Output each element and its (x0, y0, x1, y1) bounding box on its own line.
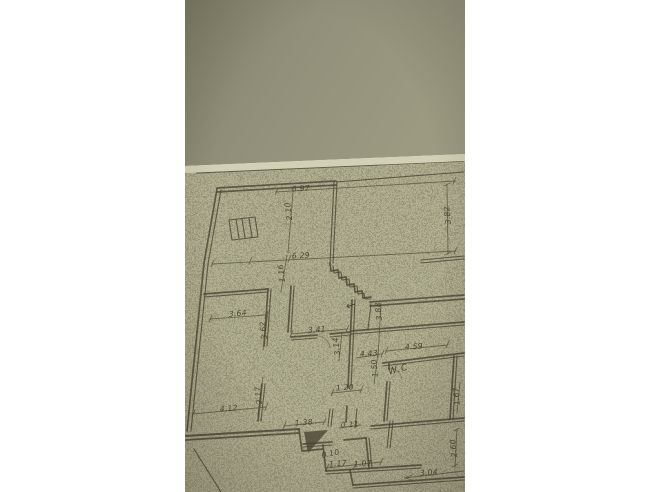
screenshot-root: 6.976.293.643.414.434.591.204.121.380.11… (0, 0, 648, 492)
floor-plan-svg: 6.976.293.643.414.434.591.204.121.380.11… (185, 0, 465, 492)
floor-plan-photo: 6.976.293.643.414.434.591.204.121.380.11… (185, 0, 465, 492)
photo-vignette (185, 0, 465, 492)
